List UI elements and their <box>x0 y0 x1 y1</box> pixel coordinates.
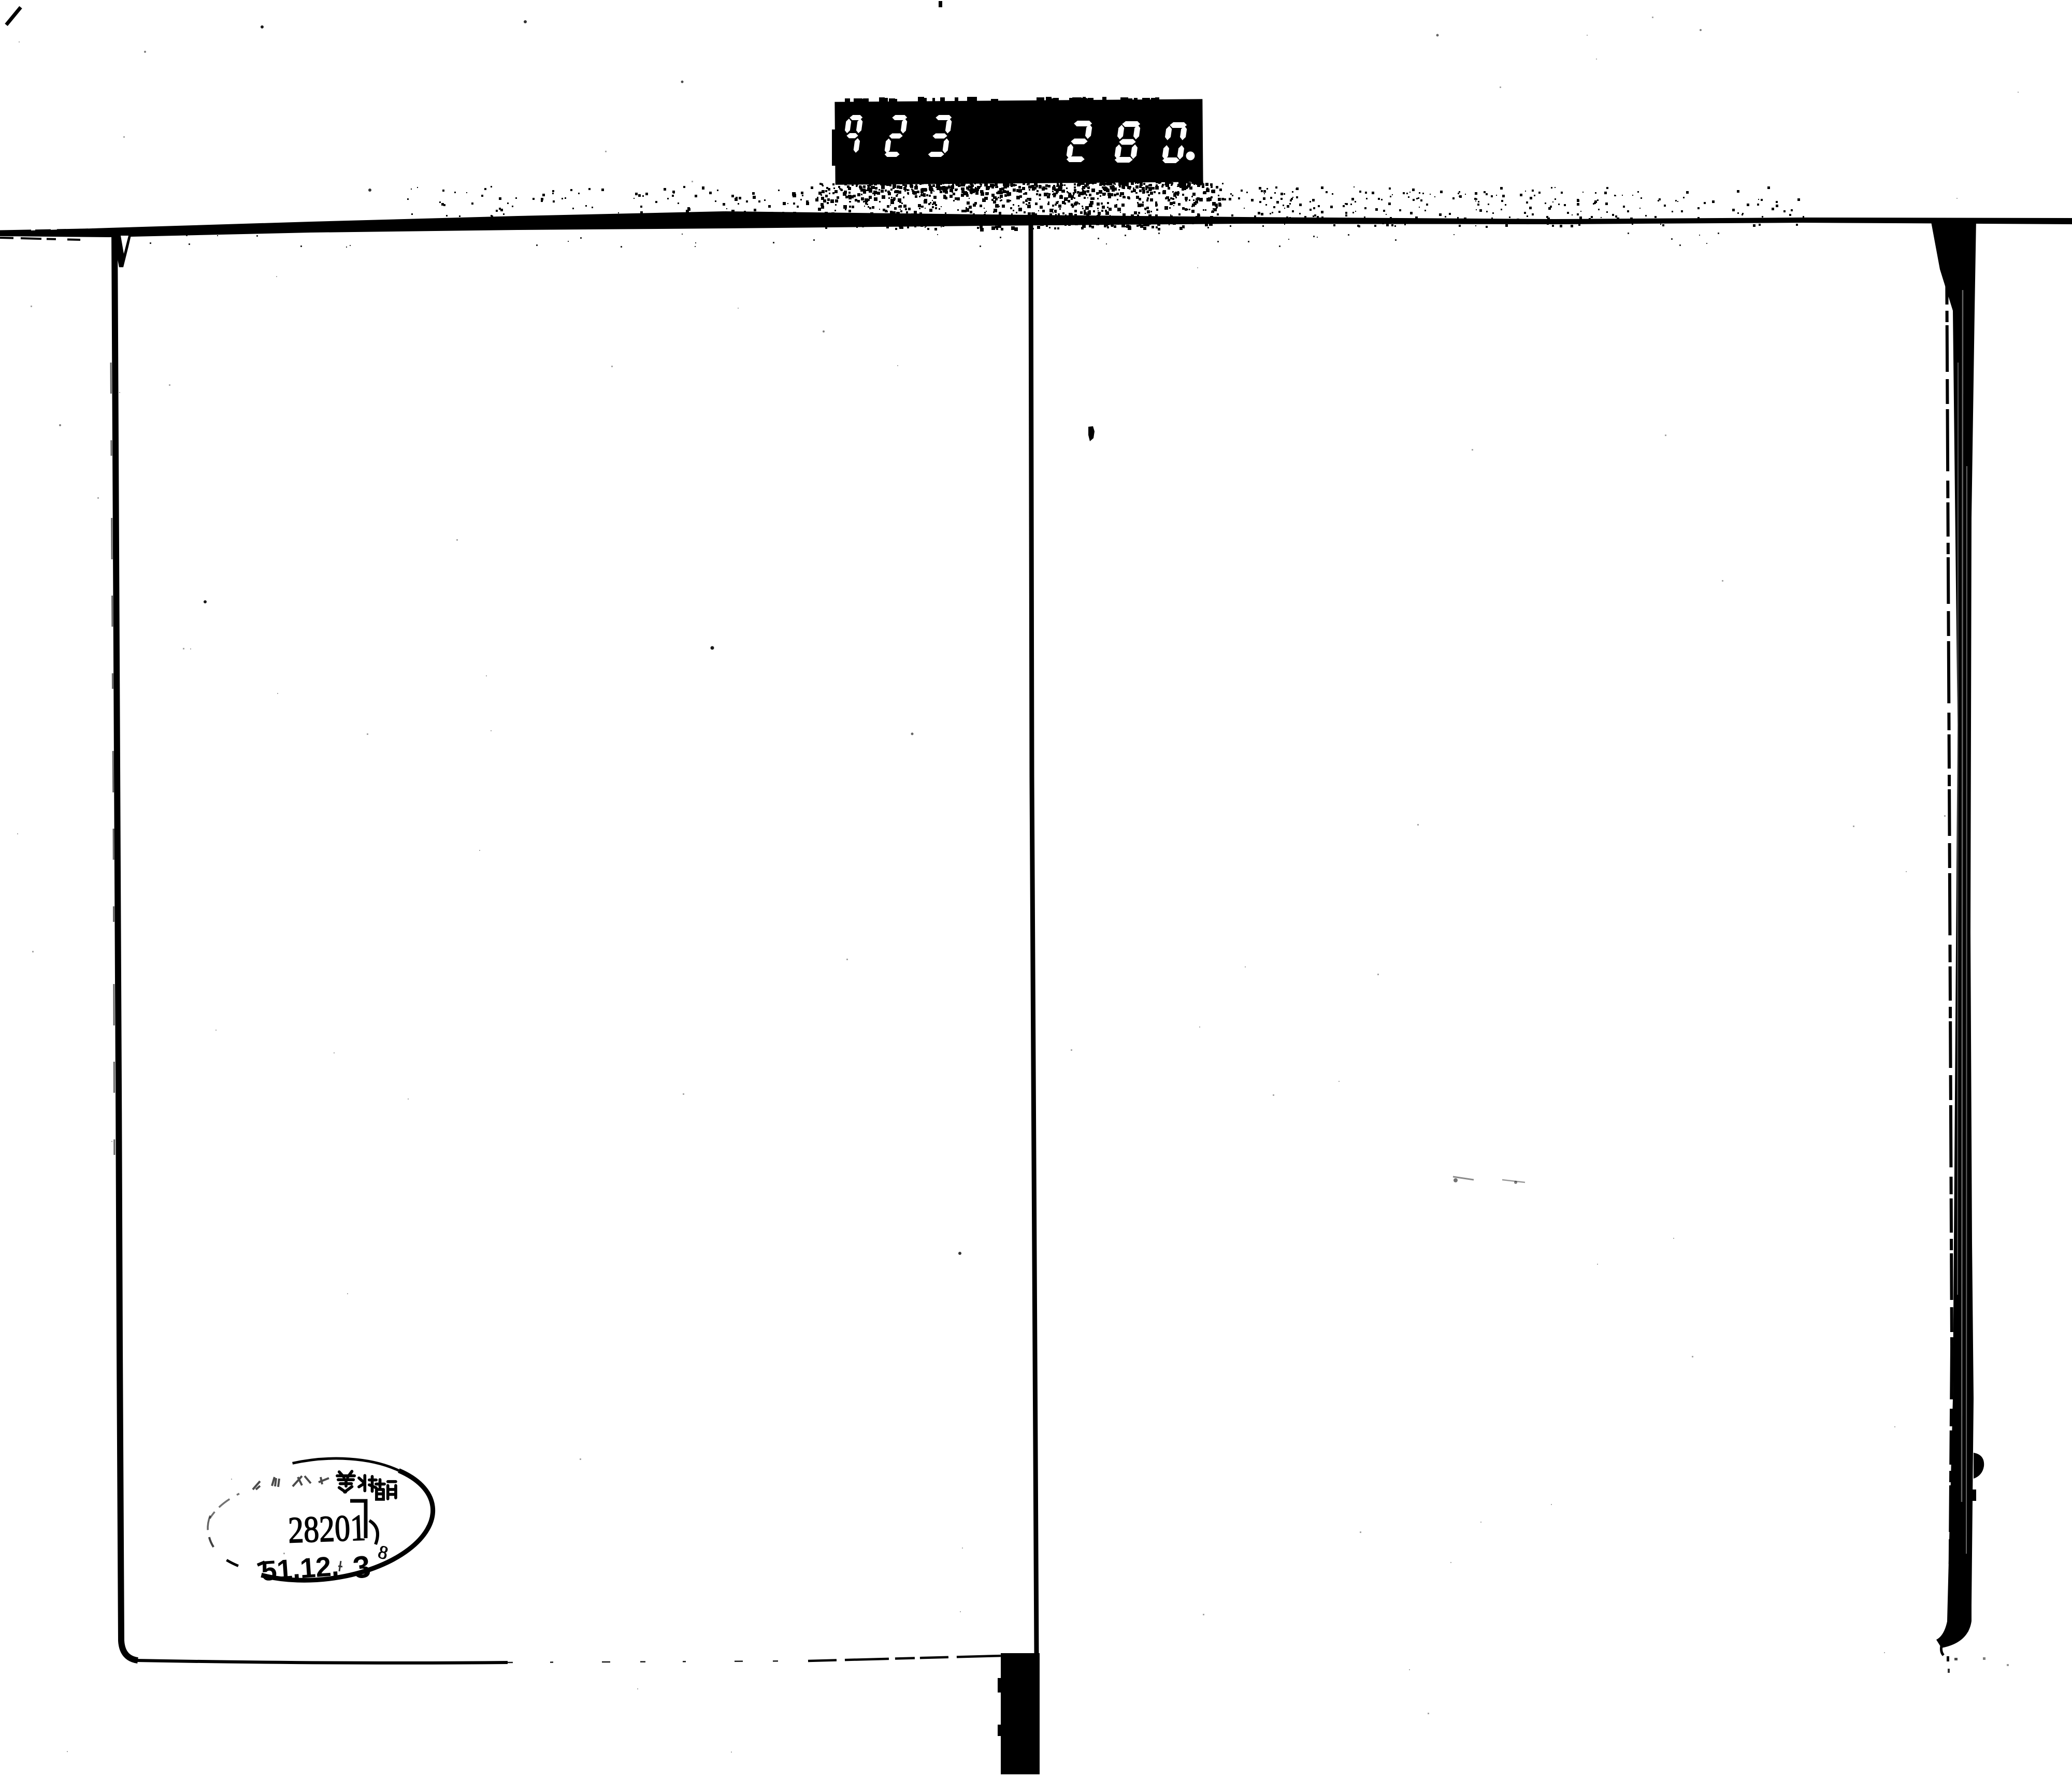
svg-text:3: 3 <box>351 1549 372 1585</box>
svg-text:51.12.: 51.12. <box>260 1551 340 1587</box>
svg-text:28201: 28201 <box>287 1507 367 1551</box>
